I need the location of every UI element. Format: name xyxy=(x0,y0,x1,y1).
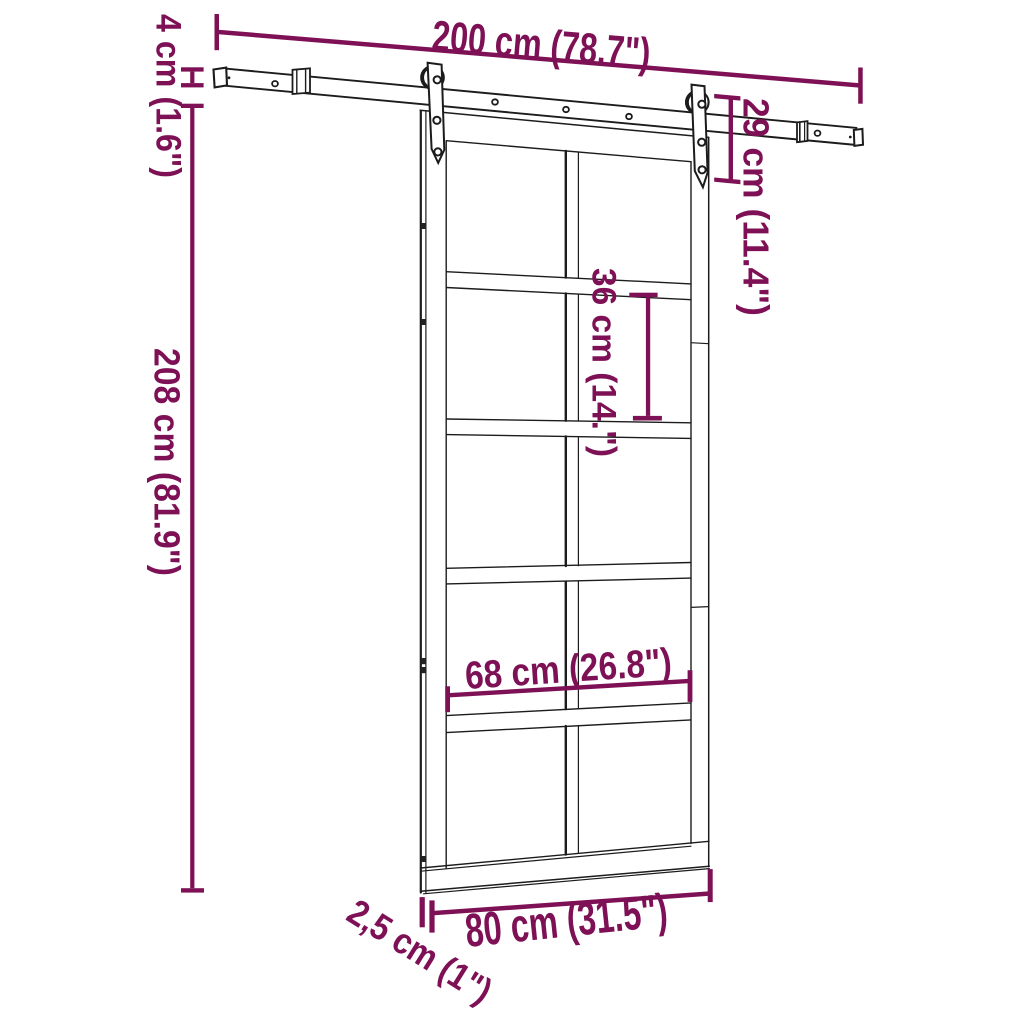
svg-text:29 cm (11.4"): 29 cm (11.4") xyxy=(736,98,777,316)
svg-text:4 cm (1.6"): 4 cm (1.6") xyxy=(149,14,188,178)
svg-text:36 cm (14."): 36 cm (14.") xyxy=(585,268,623,457)
svg-text:208 cm (81.9"): 208 cm (81.9") xyxy=(147,348,188,576)
